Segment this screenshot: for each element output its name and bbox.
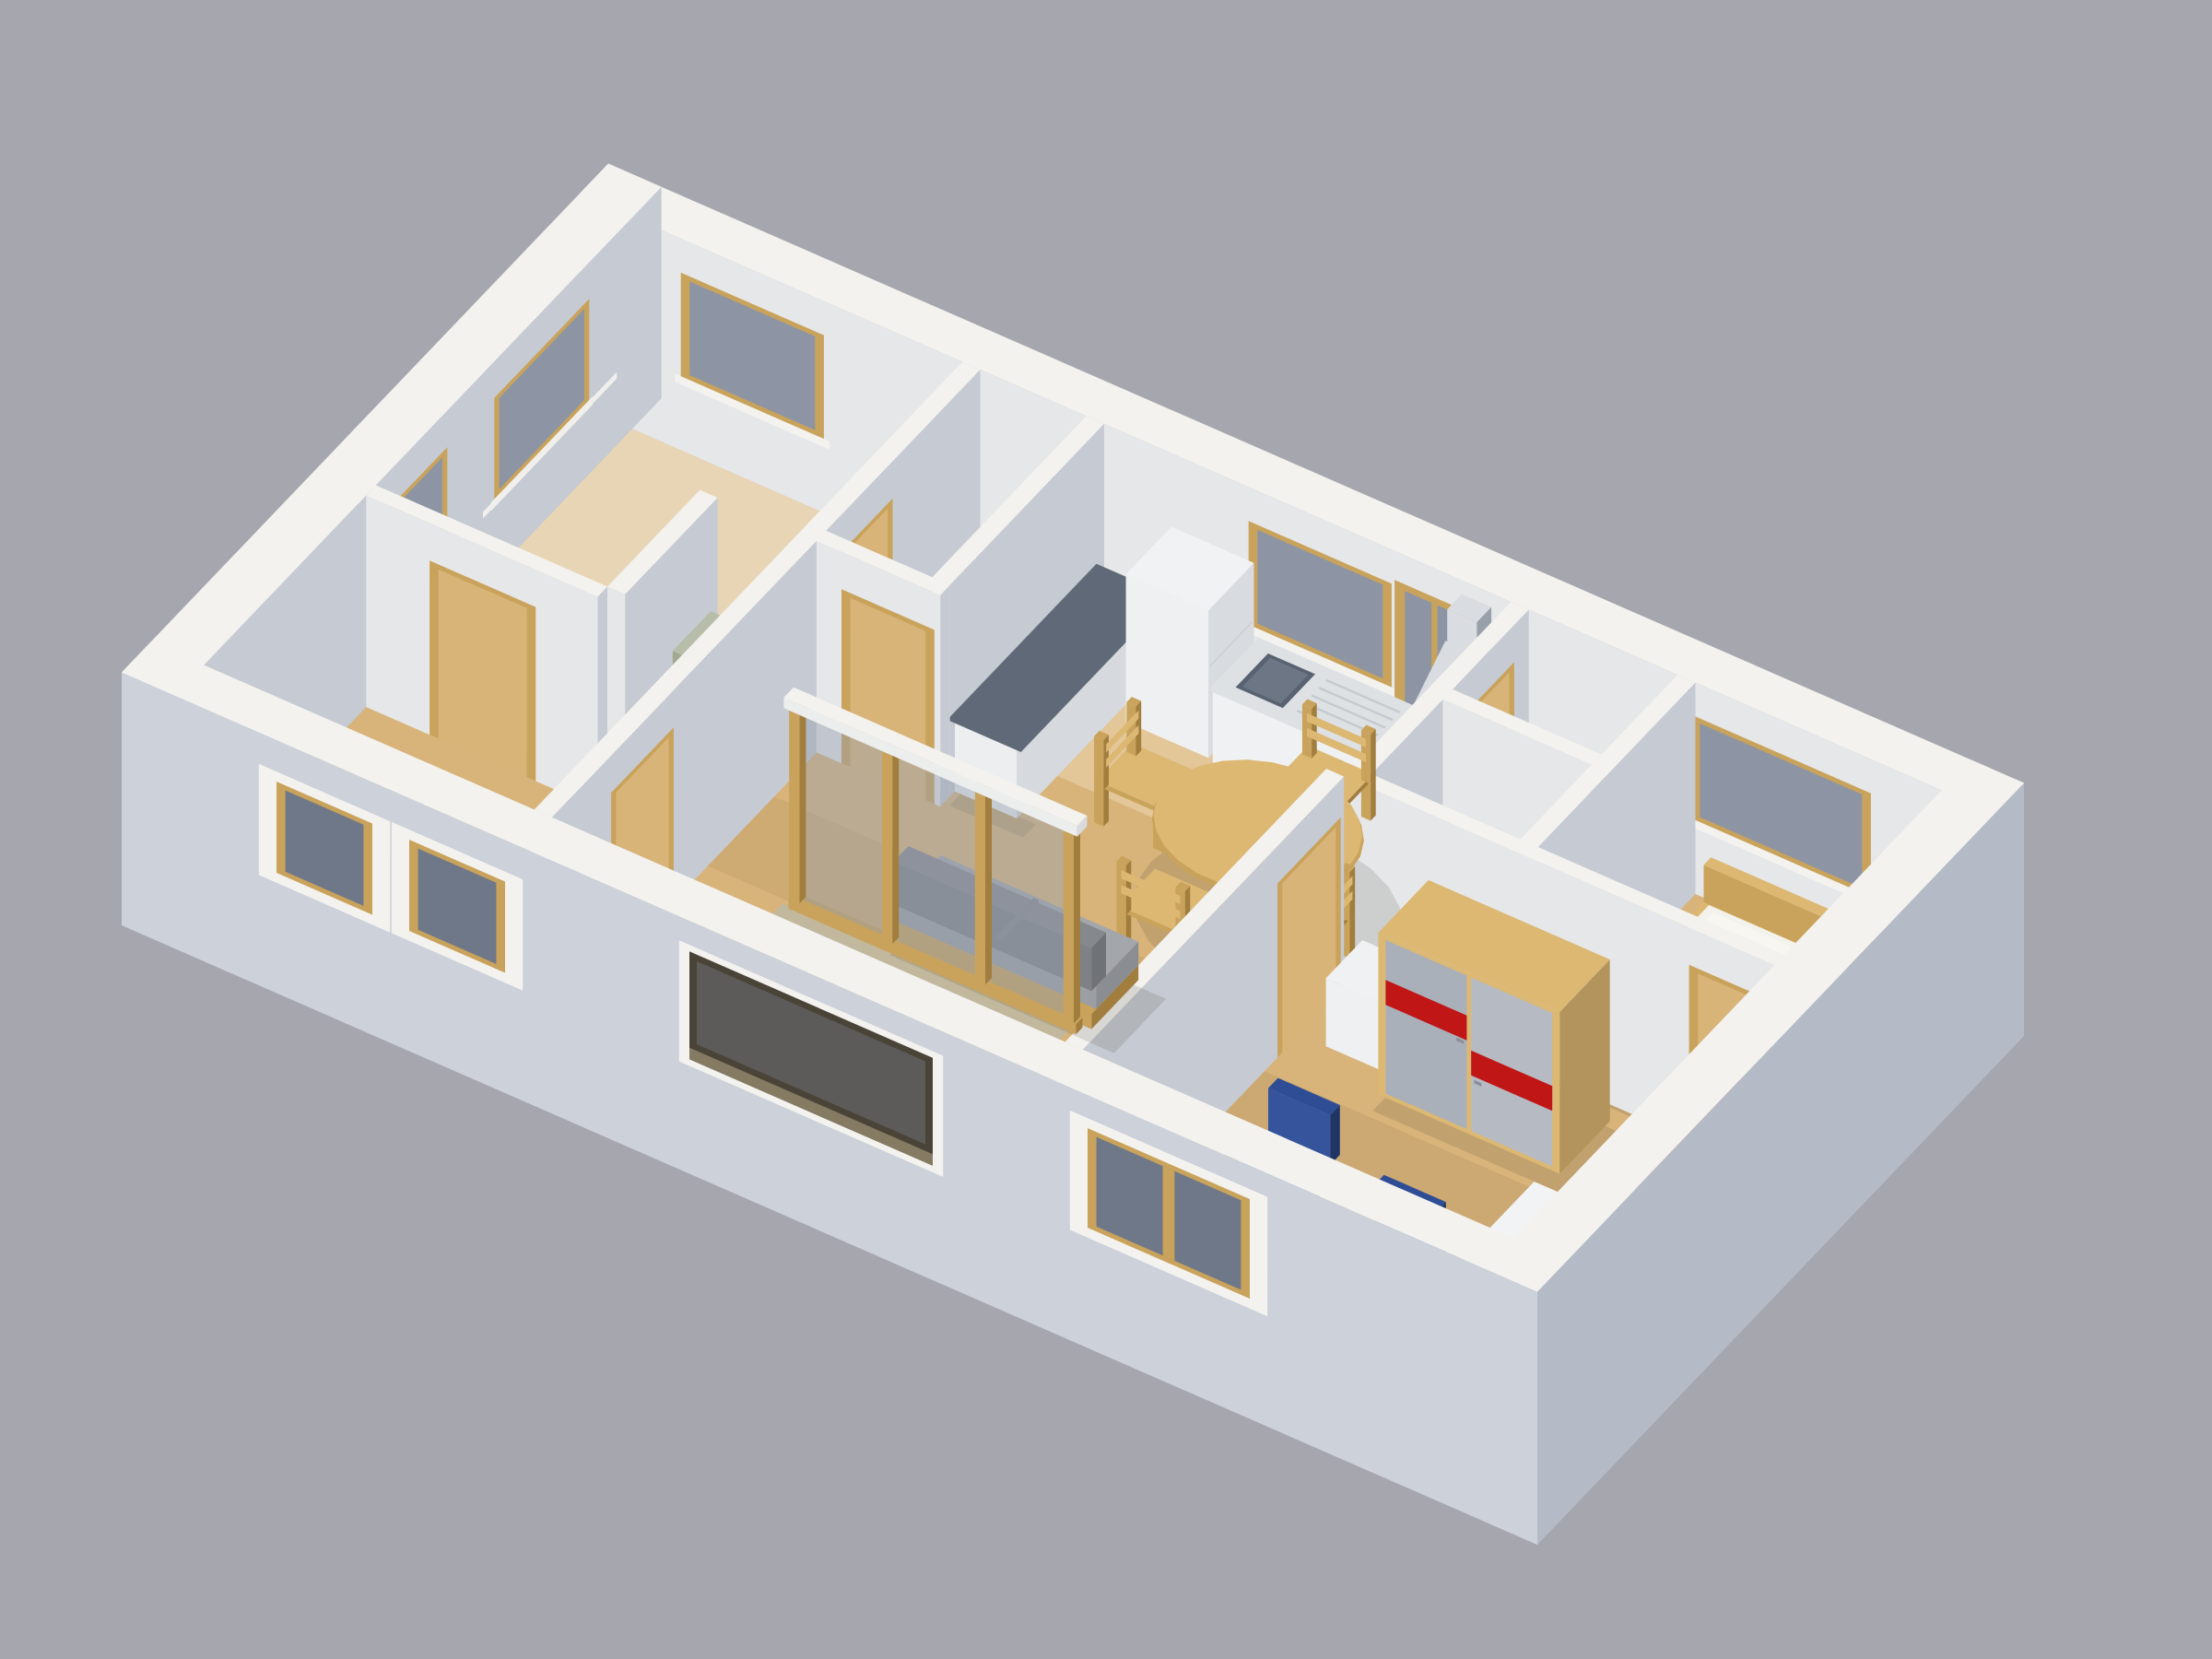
office-chair-1-back-se (1330, 1105, 1340, 1165)
partition-post-0-sw (789, 708, 799, 903)
floorplan-3d-render (0, 0, 2212, 1659)
dining-chair-2-leg3-sw (1094, 786, 1103, 827)
partition-post-2-se (985, 787, 992, 984)
partition-post-1-sw (882, 748, 892, 944)
dining-chair-1-backpost1-se (1371, 729, 1376, 784)
partition-post-3-se (1074, 826, 1080, 1023)
partition-post-2-sw (975, 790, 985, 985)
dining-chair-1-leg1-se (1371, 779, 1376, 821)
partition-post-1-se (892, 747, 899, 944)
dining-chair-2-backpost1-sw (1094, 736, 1103, 791)
dining-chair-2-leg3-se (1103, 784, 1109, 827)
render-canvas (0, 0, 2212, 1659)
partition-post-0-se (799, 706, 806, 903)
se-wall-sw (1484, 1268, 1537, 1545)
office-window-mullion (1163, 1166, 1175, 1261)
partition-post-3-sw (1064, 829, 1074, 1024)
